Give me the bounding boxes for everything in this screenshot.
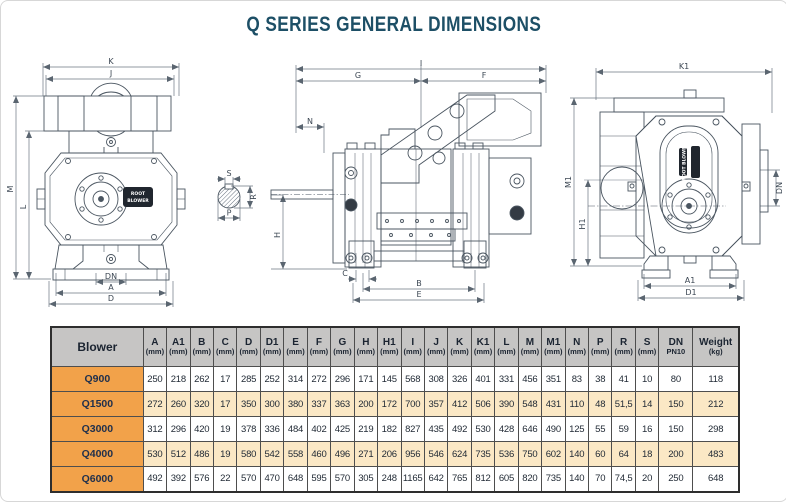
dim-label-k1: K1 bbox=[679, 62, 689, 71]
value-cell: 568 bbox=[401, 367, 424, 392]
value-cell: 512 bbox=[167, 442, 190, 467]
value-cell: 212 bbox=[693, 392, 739, 417]
value-cell: 83 bbox=[565, 367, 588, 392]
value-cell: 363 bbox=[331, 392, 354, 417]
value-cell: 38 bbox=[589, 367, 612, 392]
front-view-drawing: ROOT BLOWER K J M L DN A D bbox=[11, 51, 211, 313]
value-cell: 765 bbox=[448, 467, 471, 492]
value-cell: 357 bbox=[424, 392, 447, 417]
value-cell: 250 bbox=[143, 367, 166, 392]
column-header-d: D(mm) bbox=[237, 327, 260, 367]
dim-label-a1: A1 bbox=[685, 276, 696, 285]
table-row-q3000: Q300031229642019378336484402425219182827… bbox=[51, 417, 739, 442]
value-cell: 486 bbox=[190, 442, 213, 467]
value-cell: 80 bbox=[659, 367, 693, 392]
dim-label-b: B bbox=[416, 279, 422, 288]
value-cell: 271 bbox=[354, 442, 377, 467]
dim-label-j: J bbox=[109, 69, 112, 78]
value-cell: 484 bbox=[284, 417, 307, 442]
value-cell: 351 bbox=[542, 367, 565, 392]
value-cell: 41 bbox=[612, 367, 635, 392]
value-cell: 530 bbox=[471, 417, 494, 442]
value-cell: 336 bbox=[260, 417, 283, 442]
value-cell: 74,5 bbox=[612, 467, 635, 492]
value-cell: 305 bbox=[354, 467, 377, 492]
value-cell: 140 bbox=[565, 442, 588, 467]
table-row-q6000: Q600049239257622570470648595570305248116… bbox=[51, 467, 739, 492]
value-cell: 492 bbox=[143, 467, 166, 492]
value-cell: 312 bbox=[143, 417, 166, 442]
dim-label-r: R bbox=[249, 194, 258, 200]
value-cell: 48 bbox=[589, 392, 612, 417]
value-cell: 320 bbox=[190, 392, 213, 417]
value-cell: 171 bbox=[354, 367, 377, 392]
value-cell: 548 bbox=[518, 392, 541, 417]
side-view-drawing: I G F N H C B E bbox=[269, 53, 564, 318]
value-cell: 17 bbox=[214, 367, 237, 392]
dim-label-m1: M1 bbox=[564, 176, 573, 188]
value-cell: 70 bbox=[589, 467, 612, 492]
value-cell: 735 bbox=[471, 442, 494, 467]
column-header-m: M(mm) bbox=[518, 327, 541, 367]
value-cell: 431 bbox=[542, 392, 565, 417]
value-cell: 298 bbox=[693, 417, 739, 442]
value-cell: 182 bbox=[378, 417, 401, 442]
value-cell: 380 bbox=[284, 392, 307, 417]
column-header-a: A(mm) bbox=[143, 327, 166, 367]
value-cell: 110 bbox=[565, 392, 588, 417]
column-header-e: E(mm) bbox=[284, 327, 307, 367]
value-cell: 648 bbox=[693, 467, 739, 492]
value-cell: 735 bbox=[542, 467, 565, 492]
column-header-h: H(mm) bbox=[354, 327, 377, 367]
blower-name-cell: Q900 bbox=[51, 367, 143, 392]
column-header-d1: D1(mm) bbox=[260, 327, 283, 367]
value-cell: 206 bbox=[378, 442, 401, 467]
value-cell: 820 bbox=[518, 467, 541, 492]
blower-name-cell: Q6000 bbox=[51, 467, 143, 492]
table-body: Q900250218262172852523142722961711455683… bbox=[51, 367, 739, 492]
value-cell: 595 bbox=[307, 467, 330, 492]
column-header-k1: K1(mm) bbox=[471, 327, 494, 367]
value-cell: 530 bbox=[143, 442, 166, 467]
value-cell: 19 bbox=[214, 442, 237, 467]
column-header-b: B(mm) bbox=[190, 327, 213, 367]
value-cell: 428 bbox=[495, 417, 518, 442]
column-header-a1: A1(mm) bbox=[167, 327, 190, 367]
table-row-q4000: Q400053051248619580542558460496271206956… bbox=[51, 442, 739, 467]
value-cell: 425 bbox=[331, 417, 354, 442]
dim-label-h: H bbox=[273, 232, 282, 238]
end-view-drawing: ROOT BLOWER K1 M1 H1 DN A1 D1 bbox=[564, 58, 786, 313]
page-title: Q SERIES GENERAL DIMENSIONS bbox=[247, 13, 542, 37]
value-cell: 272 bbox=[143, 392, 166, 417]
value-cell: 125 bbox=[565, 417, 588, 442]
value-cell: 390 bbox=[495, 392, 518, 417]
value-cell: 435 bbox=[424, 417, 447, 442]
value-cell: 19 bbox=[214, 417, 237, 442]
value-cell: 64 bbox=[612, 442, 635, 467]
dim-label-d: D bbox=[108, 294, 114, 303]
value-cell: 642 bbox=[424, 467, 447, 492]
blower-name-cell: Q4000 bbox=[51, 442, 143, 467]
table-row-q1500: Q150027226032017350300380337363200172700… bbox=[51, 392, 739, 417]
value-cell: 420 bbox=[190, 417, 213, 442]
column-header-h1: H1(mm) bbox=[378, 327, 401, 367]
column-header-l: L(mm) bbox=[495, 327, 518, 367]
value-cell: 812 bbox=[471, 467, 494, 492]
dim-label-a: A bbox=[108, 283, 114, 292]
blower-name-cell: Q1500 bbox=[51, 392, 143, 417]
brand-text-line1: ROOT bbox=[131, 191, 146, 197]
value-cell: 16 bbox=[635, 417, 658, 442]
value-cell: 296 bbox=[167, 417, 190, 442]
value-cell: 326 bbox=[448, 367, 471, 392]
column-header-s: S(mm) bbox=[635, 327, 658, 367]
column-header-m1: M1(mm) bbox=[542, 327, 565, 367]
dim-label-e: E bbox=[416, 290, 421, 299]
value-cell: 602 bbox=[542, 442, 565, 467]
value-cell: 331 bbox=[495, 367, 518, 392]
dim-label-n: N bbox=[307, 117, 313, 126]
dim-label-s: S bbox=[226, 169, 231, 178]
blower-name-cell: Q3000 bbox=[51, 417, 143, 442]
column-header-i: I(mm) bbox=[401, 327, 424, 367]
value-cell: 172 bbox=[378, 392, 401, 417]
value-cell: 648 bbox=[284, 467, 307, 492]
value-cell: 337 bbox=[307, 392, 330, 417]
dim-label-p: P bbox=[227, 209, 232, 218]
value-cell: 700 bbox=[401, 392, 424, 417]
blower-column-header: Blower bbox=[51, 327, 143, 367]
dim-label-d1: D1 bbox=[685, 288, 696, 297]
dim-label-f: F bbox=[482, 71, 487, 80]
value-cell: 55 bbox=[589, 417, 612, 442]
column-header-g: G(mm) bbox=[331, 327, 354, 367]
value-cell: 272 bbox=[307, 367, 330, 392]
value-cell: 542 bbox=[260, 442, 283, 467]
value-cell: 262 bbox=[190, 367, 213, 392]
value-cell: 412 bbox=[448, 392, 471, 417]
value-cell: 546 bbox=[424, 442, 447, 467]
value-cell: 14 bbox=[635, 392, 658, 417]
value-cell: 285 bbox=[237, 367, 260, 392]
value-cell: 150 bbox=[659, 392, 693, 417]
value-cell: 118 bbox=[693, 367, 739, 392]
value-cell: 506 bbox=[471, 392, 494, 417]
value-cell: 22 bbox=[214, 467, 237, 492]
dim-label-c: C bbox=[342, 269, 348, 278]
column-header-r: R(mm) bbox=[612, 327, 635, 367]
column-header-dn: DNPN10 bbox=[659, 327, 693, 367]
value-cell: 570 bbox=[331, 467, 354, 492]
value-cell: 1165 bbox=[401, 467, 424, 492]
value-cell: 392 bbox=[167, 467, 190, 492]
value-cell: 150 bbox=[659, 417, 693, 442]
brand-plate bbox=[123, 187, 153, 207]
value-cell: 18 bbox=[635, 442, 658, 467]
value-cell: 314 bbox=[284, 367, 307, 392]
value-cell: 350 bbox=[237, 392, 260, 417]
value-cell: 570 bbox=[237, 467, 260, 492]
value-cell: 218 bbox=[167, 367, 190, 392]
brand-plate-vertical bbox=[691, 146, 700, 178]
value-cell: 140 bbox=[565, 467, 588, 492]
value-cell: 460 bbox=[307, 442, 330, 467]
table-row-q900: Q900250218262172852523142722961711455683… bbox=[51, 367, 739, 392]
dim-label-i: I bbox=[420, 59, 422, 68]
value-cell: 60 bbox=[589, 442, 612, 467]
value-cell: 10 bbox=[635, 367, 658, 392]
value-cell: 490 bbox=[542, 417, 565, 442]
value-cell: 250 bbox=[659, 467, 693, 492]
dimensions-table: Blower A(mm)A1(mm)B(mm)C(mm)D(mm)D1(mm)E… bbox=[50, 326, 740, 493]
dim-label-m: M bbox=[6, 185, 15, 192]
value-cell: 580 bbox=[237, 442, 260, 467]
column-header-f: F(mm) bbox=[307, 327, 330, 367]
dim-label-g: G bbox=[355, 71, 361, 80]
dim-label-k: K bbox=[108, 57, 114, 66]
value-cell: 456 bbox=[518, 367, 541, 392]
table-header-row: Blower A(mm)A1(mm)B(mm)C(mm)D(mm)D1(mm)E… bbox=[51, 327, 739, 367]
value-cell: 401 bbox=[471, 367, 494, 392]
value-cell: 200 bbox=[354, 392, 377, 417]
value-cell: 260 bbox=[167, 392, 190, 417]
value-cell: 483 bbox=[693, 442, 739, 467]
dim-label-l: L bbox=[19, 204, 28, 209]
value-cell: 219 bbox=[354, 417, 377, 442]
value-cell: 296 bbox=[331, 367, 354, 392]
value-cell: 378 bbox=[237, 417, 260, 442]
page-header: Q SERIES GENERAL DIMENSIONS bbox=[1, 13, 786, 37]
value-cell: 492 bbox=[448, 417, 471, 442]
value-cell: 17 bbox=[214, 392, 237, 417]
value-cell: 624 bbox=[448, 442, 471, 467]
value-cell: 750 bbox=[518, 442, 541, 467]
value-cell: 827 bbox=[401, 417, 424, 442]
dim-label-dn: DN bbox=[105, 272, 117, 281]
column-header-n: N(mm) bbox=[565, 327, 588, 367]
brand-text-vertical: ROOT BLOWER bbox=[682, 143, 688, 181]
value-cell: 248 bbox=[378, 467, 401, 492]
value-cell: 300 bbox=[260, 392, 283, 417]
column-header-weight: Weight(kg) bbox=[693, 327, 739, 367]
column-header-k: K(mm) bbox=[448, 327, 471, 367]
dim-label-dn-right: DN bbox=[775, 182, 784, 194]
value-cell: 496 bbox=[331, 442, 354, 467]
value-cell: 536 bbox=[495, 442, 518, 467]
value-cell: 51,5 bbox=[612, 392, 635, 417]
value-cell: 646 bbox=[518, 417, 541, 442]
value-cell: 145 bbox=[378, 367, 401, 392]
value-cell: 956 bbox=[401, 442, 424, 467]
value-cell: 20 bbox=[635, 467, 658, 492]
value-cell: 558 bbox=[284, 442, 307, 467]
column-header-p: P(mm) bbox=[589, 327, 612, 367]
datasheet-page: Q SERIES GENERAL DIMENSIONS bbox=[0, 0, 786, 502]
value-cell: 576 bbox=[190, 467, 213, 492]
value-cell: 308 bbox=[424, 367, 447, 392]
value-cell: 402 bbox=[307, 417, 330, 442]
value-cell: 200 bbox=[659, 442, 693, 467]
brand-text-line2: BLOWER bbox=[127, 198, 149, 204]
column-header-c: C(mm) bbox=[214, 327, 237, 367]
value-cell: 59 bbox=[612, 417, 635, 442]
value-cell: 252 bbox=[260, 367, 283, 392]
value-cell: 605 bbox=[495, 467, 518, 492]
column-header-j: J(mm) bbox=[424, 327, 447, 367]
dim-label-h1: H1 bbox=[578, 218, 587, 229]
dimensions-table-wrap: Blower A(mm)A1(mm)B(mm)C(mm)D(mm)D1(mm)E… bbox=[50, 326, 740, 493]
value-cell: 470 bbox=[260, 467, 283, 492]
